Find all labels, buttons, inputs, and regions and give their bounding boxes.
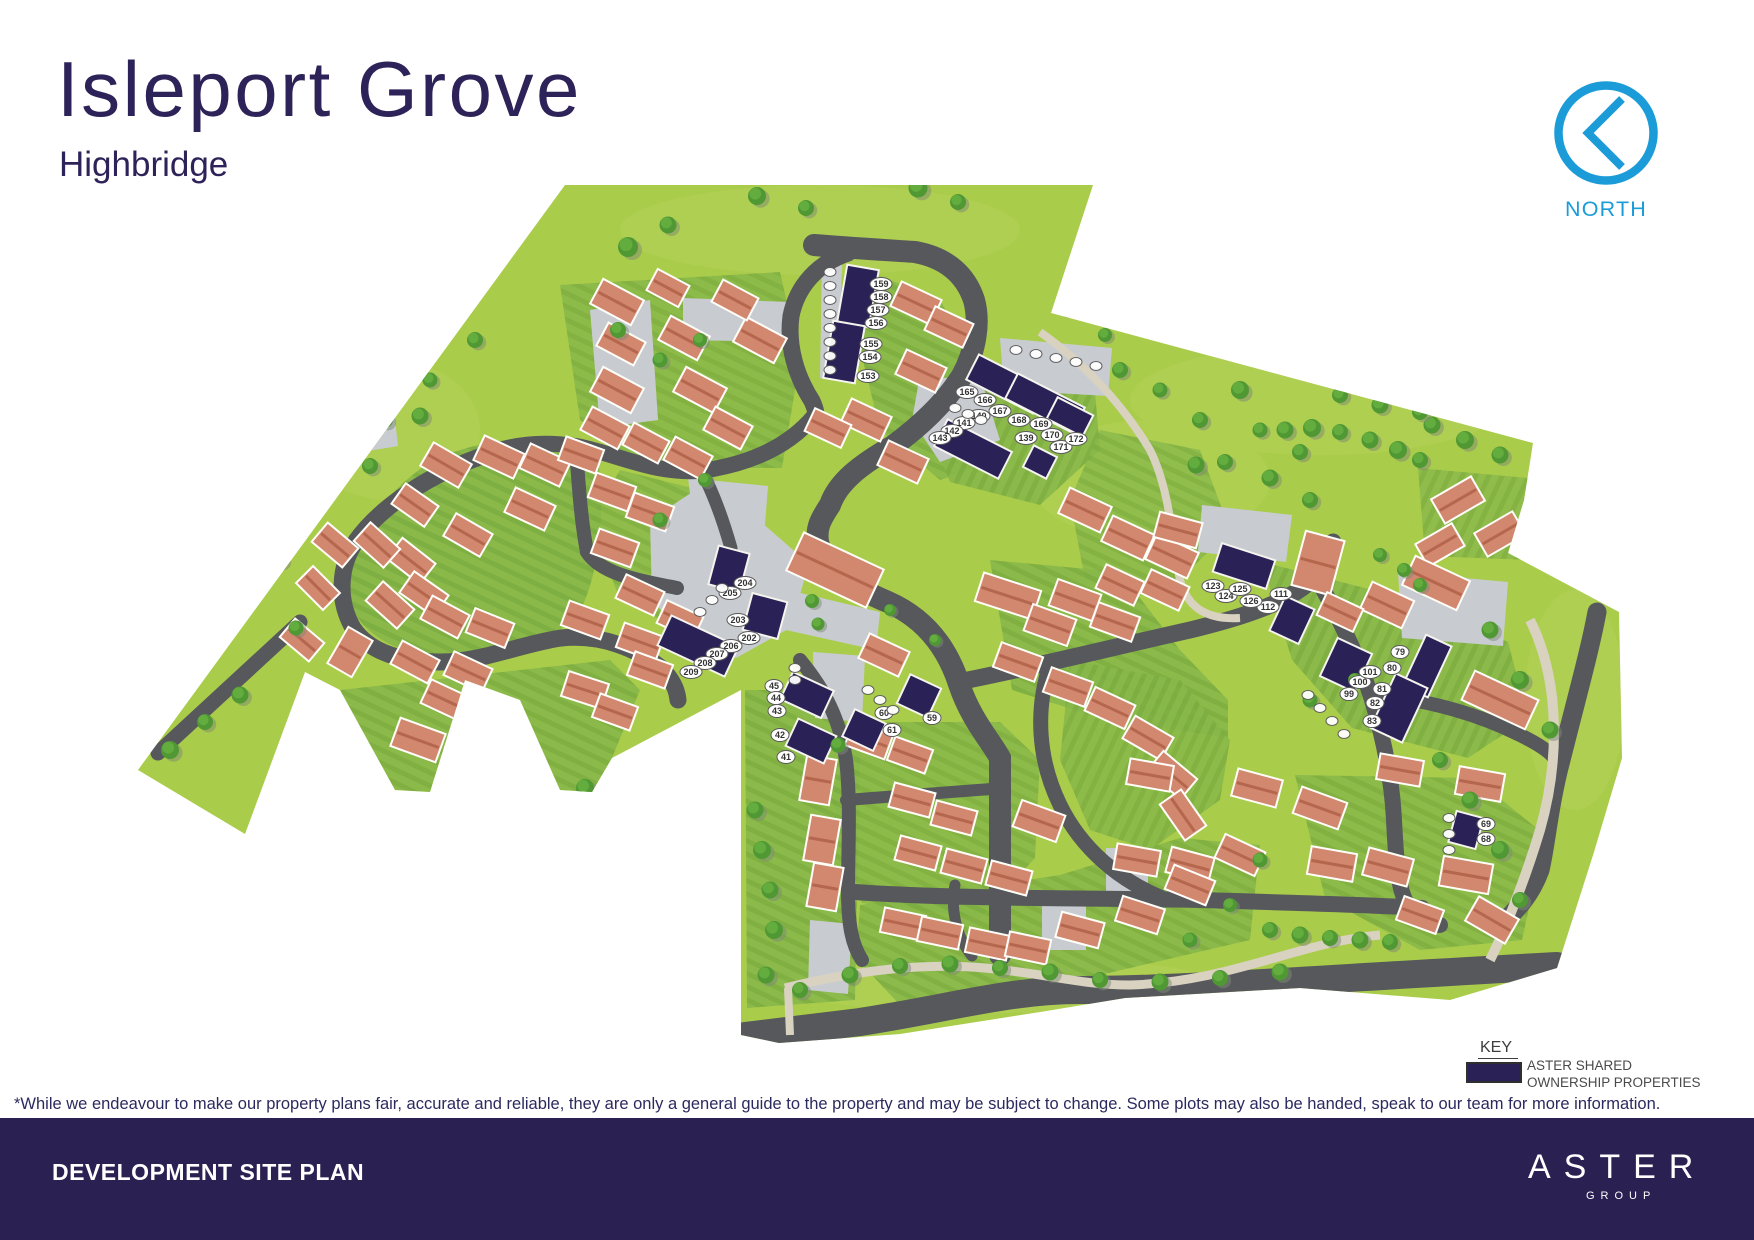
svg-text:203: 203 bbox=[730, 615, 745, 625]
svg-text:202: 202 bbox=[741, 633, 756, 643]
svg-text:126: 126 bbox=[1243, 596, 1258, 606]
svg-text:79: 79 bbox=[1395, 647, 1405, 657]
svg-text:42: 42 bbox=[775, 730, 785, 740]
svg-text:208: 208 bbox=[697, 658, 712, 668]
svg-text:59: 59 bbox=[927, 713, 937, 723]
svg-text:157: 157 bbox=[870, 305, 885, 315]
svg-text:61: 61 bbox=[887, 725, 897, 735]
svg-text:204: 204 bbox=[737, 578, 752, 588]
svg-text:170: 170 bbox=[1044, 430, 1059, 440]
svg-text:165: 165 bbox=[959, 387, 974, 397]
svg-text:45: 45 bbox=[769, 681, 779, 691]
svg-text:166: 166 bbox=[977, 395, 992, 405]
svg-text:123: 123 bbox=[1205, 581, 1220, 591]
svg-text:153: 153 bbox=[860, 371, 875, 381]
svg-text:155: 155 bbox=[863, 339, 878, 349]
svg-text:83: 83 bbox=[1367, 716, 1377, 726]
svg-text:NORTH: NORTH bbox=[1565, 197, 1647, 221]
svg-text:101: 101 bbox=[1362, 667, 1377, 677]
svg-text:154: 154 bbox=[862, 352, 877, 362]
svg-text:167: 167 bbox=[992, 406, 1007, 416]
svg-text:80: 80 bbox=[1387, 663, 1397, 673]
svg-text:168: 168 bbox=[1011, 415, 1026, 425]
svg-text:69: 69 bbox=[1481, 819, 1491, 829]
svg-text:158: 158 bbox=[873, 292, 888, 302]
svg-text:169: 169 bbox=[1033, 419, 1048, 429]
svg-text:82: 82 bbox=[1370, 698, 1380, 708]
svg-text:100: 100 bbox=[1352, 677, 1367, 687]
svg-text:159: 159 bbox=[873, 279, 888, 289]
svg-text:112: 112 bbox=[1261, 602, 1276, 612]
svg-text:143: 143 bbox=[932, 433, 947, 443]
svg-text:43: 43 bbox=[772, 706, 782, 716]
svg-text:111: 111 bbox=[1274, 589, 1288, 599]
svg-text:206: 206 bbox=[723, 641, 738, 651]
svg-text:171: 171 bbox=[1053, 442, 1068, 452]
svg-text:172: 172 bbox=[1068, 434, 1083, 444]
svg-text:209: 209 bbox=[683, 667, 698, 677]
svg-text:139: 139 bbox=[1018, 433, 1033, 443]
svg-text:44: 44 bbox=[771, 693, 781, 703]
svg-text:99: 99 bbox=[1344, 689, 1354, 699]
svg-text:68: 68 bbox=[1481, 834, 1491, 844]
svg-text:125: 125 bbox=[1232, 584, 1247, 594]
svg-text:81: 81 bbox=[1377, 684, 1387, 694]
svg-text:156: 156 bbox=[868, 318, 883, 328]
svg-text:41: 41 bbox=[781, 752, 791, 762]
svg-text:124: 124 bbox=[1218, 591, 1233, 601]
